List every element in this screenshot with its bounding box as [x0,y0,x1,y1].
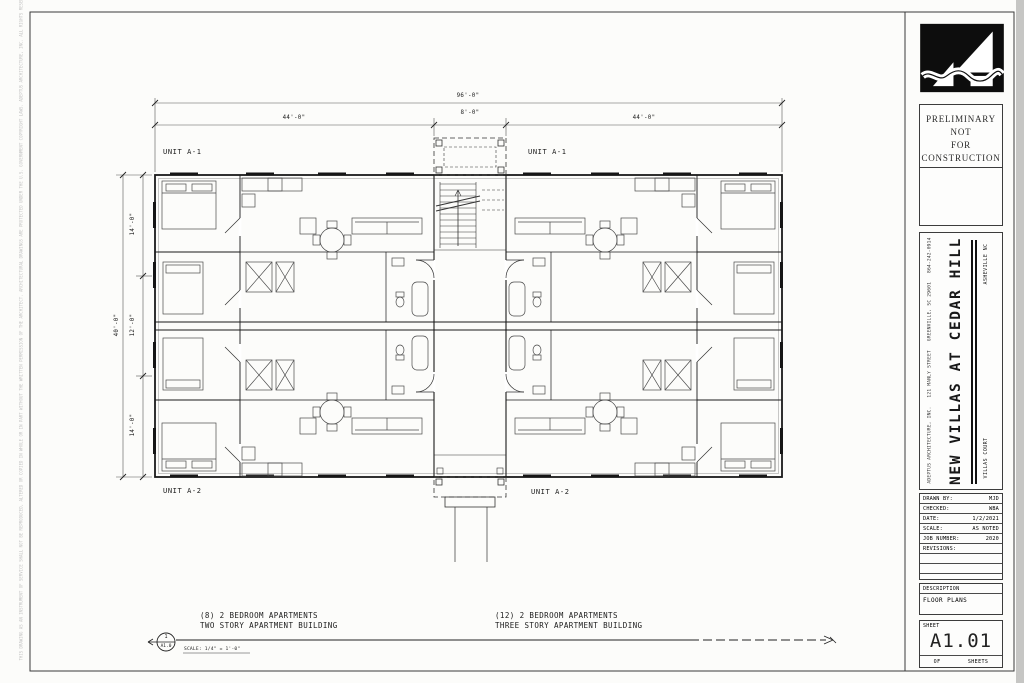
copyright-disclaimer: THIS DRAWING AS AN INSTRUMENT OF SERVICE… [19,21,24,661]
sheet-number-box: SHEET A1.01 OF SHEETS [919,620,1003,668]
info-value: MJD [989,496,999,502]
window-marks [153,173,783,478]
bubble-sheet-ref: A1.0 [156,644,176,649]
note-left-line1: (8) 2 BEDROOM APARTMENTS [200,611,318,620]
sheet-label: SHEET [920,621,1002,629]
description-box: DESCRIPTION FLOOR PLANS [919,583,1003,615]
info-label: SCALE: [923,526,943,532]
title-rule-2 [975,240,977,484]
annotation-line [176,636,836,644]
bubble-drawing-number: 1 [160,634,172,640]
stamp-line2: NOT [920,126,1002,139]
sheet-info-table: DRAWN BY: MJD CHECKED: WBA DATE: 1/2/202… [919,493,1003,580]
note-right-line2: THREE STORY APARTMENT BUILDING [495,621,642,630]
stair-core [434,182,506,474]
info-label: REVISIONS: [923,546,956,552]
dim-left-bottom-segment: 14'-0" [130,405,136,445]
dim-left-overall: 40'-0" [114,305,120,345]
logo-graphic [919,23,1005,93]
preliminary-stamp: PRELIMINARY NOT FOR CONSTRUCTION [919,104,1003,226]
border-frame [30,12,1014,671]
dim-left-middle-segment: 12'-0" [130,305,136,345]
dimension-ticks [120,100,785,480]
stamp-divider [920,167,1002,168]
dim-left-top-segment: 14'-0" [130,204,136,244]
info-label: DATE: [923,516,940,522]
info-label: DRAWN BY: [923,496,953,502]
dim-top-left-segment: 44'-0" [274,115,314,121]
unit-label-top-right: UNIT A-1 [528,148,567,156]
info-label: JOB NUMBER: [923,536,960,542]
firm-logo [919,23,1005,93]
unit-label-top-left: UNIT A-1 [163,148,202,156]
info-value: 1/2/2021 [972,516,999,522]
of-sheets-row: OF SHEETS [920,655,1002,667]
project-subtitle: VILLAS COURT [983,430,989,486]
info-row-blank [920,564,1002,574]
unit-label-bottom-right: UNIT A-2 [531,488,570,496]
dimension-lines [116,98,782,477]
info-row-date: DATE: 1/2/2021 [920,514,1002,524]
stamp-line1: PRELIMINARY [920,113,1002,126]
description-label: DESCRIPTION [920,584,1002,594]
info-row-drawn-by: DRAWN BY: MJD [920,494,1002,504]
furniture [162,178,775,476]
dim-top-overall: 96'-0" [438,93,498,99]
description-value: FLOOR PLANS [920,594,1002,607]
of-label: OF [934,659,941,665]
architectural-sheet: { "plan": { "units": { "top_left": "UNIT… [0,0,1024,683]
stair-tower-canopy [434,138,506,175]
firm-address: ADEPTUS ARCHITECTURE, INC. 121 MANLY STR… [928,235,933,487]
dim-top-right-segment: 44'-0" [624,115,664,121]
info-row-checked: CHECKED: WBA [920,504,1002,514]
note-left-line2: TWO STORY APARTMENT BUILDING [200,621,338,630]
info-row-scale: SCALE: AS NOTED [920,524,1002,534]
unit-label-bottom-left: UNIT A-2 [163,487,202,495]
project-title: NEW VILLAS AT CEDAR HILL [948,236,964,486]
sheet-number: A1.01 [920,630,1002,652]
door-swings [225,218,712,462]
info-row-revisions: REVISIONS: [920,544,1002,554]
title-rule-1 [971,240,973,484]
sheets-label: SHEETS [968,659,988,665]
info-row-job-number: JOB NUMBER: 2020 [920,534,1002,544]
info-value: AS NOTED [972,526,999,532]
info-row-blank [920,554,1002,564]
drawing-scale-note: SCALE: 1/4" = 1'-0" [184,647,240,652]
info-value: WBA [989,506,999,512]
project-location: ASHEVILLE NC [983,236,989,292]
stamp-line3: FOR [920,139,1002,152]
entry-porch [434,477,506,562]
stamp-line4: CONSTRUCTION [920,152,1002,165]
info-label: CHECKED: [923,506,950,512]
dim-top-center-segment: 8'-0" [450,110,490,116]
floor-plan-drawing [0,0,1024,683]
note-right-line1: (12) 2 BEDROOM APARTMENTS [495,611,618,620]
info-value: 2020 [986,536,999,542]
